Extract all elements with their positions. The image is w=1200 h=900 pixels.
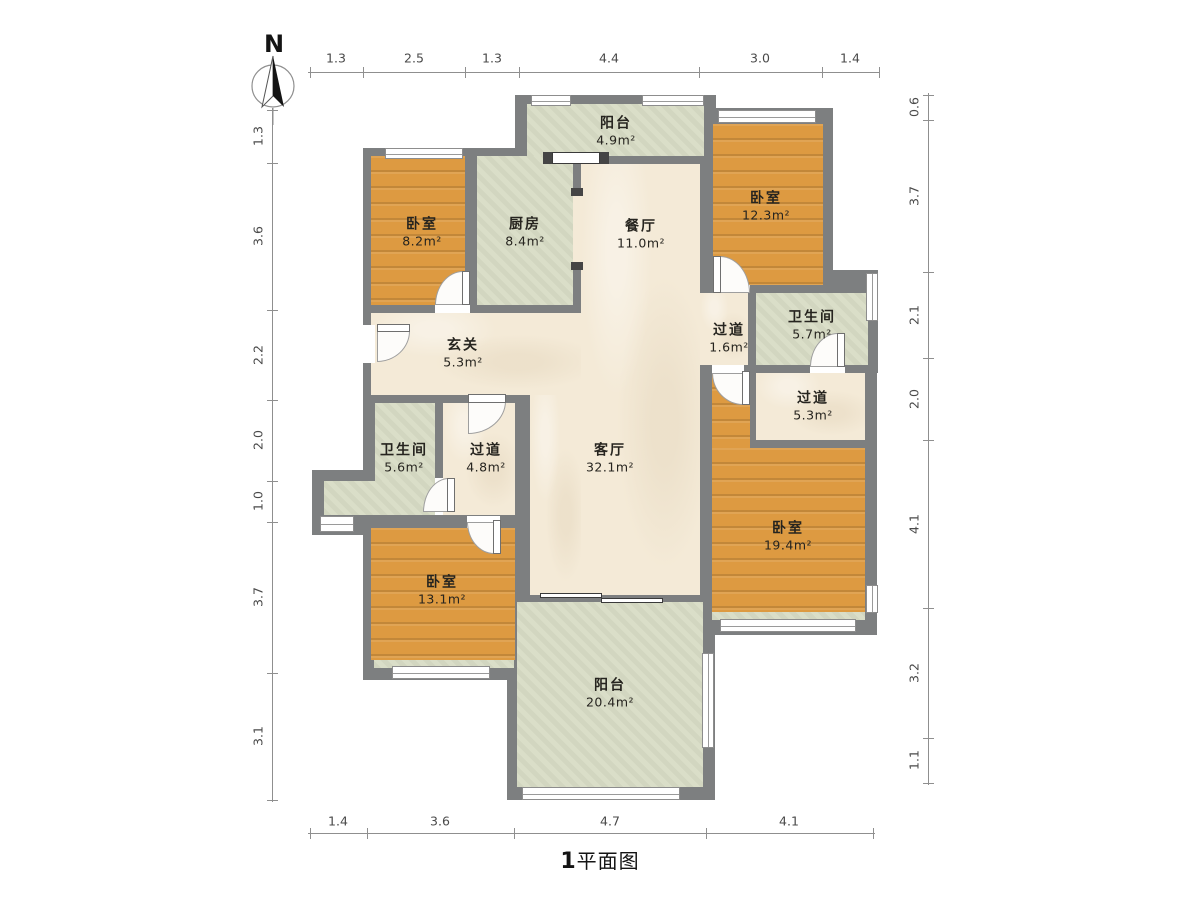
door-jamb [600, 152, 609, 164]
dim-tick [267, 800, 278, 801]
dim-tick [923, 120, 934, 121]
dimension-label: 0.6 [907, 97, 922, 117]
door-leaf [713, 256, 721, 293]
dimension-label: 1.1 [907, 750, 922, 770]
dimension-label: 2.0 [907, 389, 922, 409]
sliding-door [601, 598, 663, 603]
dimension-label: 3.7 [251, 587, 266, 607]
dimension-label: 4.1 [779, 814, 799, 829]
window [642, 95, 704, 106]
dim-tick [923, 272, 934, 273]
door-leaf [493, 520, 501, 554]
room-label: 客厅32.1m² [586, 440, 634, 475]
dimension-line-bottom [308, 833, 875, 834]
dim-tick [699, 67, 700, 78]
room-label: 过道4.8m² [466, 440, 506, 475]
dim-tick [873, 828, 874, 839]
dimension-label: 3.7 [907, 186, 922, 206]
dim-tick [923, 783, 934, 784]
window [522, 787, 680, 800]
dimension-label: 1.3 [482, 51, 502, 66]
window [720, 619, 856, 632]
dim-tick [514, 828, 515, 839]
dimension-label: 2.5 [404, 51, 424, 66]
dim-tick [519, 67, 520, 78]
dim-tick [267, 481, 278, 482]
dim-tick [367, 828, 368, 839]
dimension-label: 4.7 [600, 814, 620, 829]
door-opening [712, 365, 744, 373]
dimension-line-top [308, 72, 880, 73]
dim-tick [267, 163, 278, 164]
room-label: 卫生间5.6m² [380, 440, 428, 475]
sliding-door [552, 152, 600, 164]
door-jamb [571, 262, 583, 270]
dim-tick [267, 310, 278, 311]
dimension-label: 1.3 [251, 126, 266, 146]
door-jamb [571, 188, 583, 196]
window [866, 585, 878, 613]
door-leaf [377, 324, 410, 332]
dim-tick [267, 522, 278, 523]
dimension-label: 2.1 [907, 305, 922, 325]
dim-tick [923, 608, 934, 609]
dimension-line-left [272, 108, 273, 802]
room-label: 卧室12.3m² [742, 188, 790, 223]
dimension-label: 1.0 [251, 491, 266, 511]
door-leaf [742, 371, 750, 405]
dimension-label: 3.2 [907, 663, 922, 683]
window [718, 110, 816, 123]
dim-tick [923, 95, 934, 96]
room-label: 过道1.6m² [709, 320, 749, 355]
door-leaf [837, 333, 845, 367]
dimension-label: 3.6 [430, 814, 450, 829]
window [320, 516, 354, 532]
window [385, 148, 463, 159]
dim-tick [267, 400, 278, 401]
dimension-label: 1.4 [840, 51, 860, 66]
dim-tick [310, 828, 311, 839]
north-label: N [264, 30, 284, 58]
dim-tick [363, 67, 364, 78]
door-opening [363, 325, 375, 363]
door-opening [573, 196, 581, 262]
door-leaf [468, 394, 506, 403]
dimension-label: 3.0 [750, 51, 770, 66]
room-label: 过道5.3m² [793, 388, 833, 423]
plan-title-number: 1 [560, 849, 576, 874]
room-label: 阳台4.9m² [596, 113, 636, 148]
room-label: 阳台20.4m² [586, 675, 634, 710]
dim-tick [465, 67, 466, 78]
north-arrow-icon: N [240, 28, 310, 128]
room-label: 卧室19.4m² [764, 518, 812, 553]
door-leaf [447, 478, 455, 512]
room-label: 卧室8.2m² [402, 214, 442, 249]
dim-tick [706, 828, 707, 839]
dim-tick [923, 738, 934, 739]
window [531, 95, 571, 106]
dim-tick [267, 673, 278, 674]
dim-tick [923, 358, 934, 359]
room-label: 厨房8.4m² [505, 214, 545, 249]
window [866, 273, 878, 321]
door-jamb [543, 152, 552, 164]
dimension-label: 4.4 [599, 51, 619, 66]
dimension-label: 2.0 [251, 430, 266, 450]
room-label: 餐厅11.0m² [617, 216, 665, 251]
plan-title: 1平面图 [0, 845, 1200, 874]
sliding-door [540, 593, 602, 598]
dimension-label: 4.1 [907, 514, 922, 534]
dimension-label: 3.1 [251, 726, 266, 746]
window [392, 666, 490, 679]
room-label: 卫生间5.7m² [788, 307, 836, 342]
dimension-label: 1.4 [328, 814, 348, 829]
floor-plan: 阳台4.9m² 卧室8.2m² 厨房8.4m² 餐厅11.0m² 卧室12.3m… [0, 0, 1200, 900]
room-living-left [530, 395, 581, 595]
room-bathroom-left-lower [324, 481, 435, 515]
room-label: 玄关5.3m² [443, 335, 483, 370]
dim-tick [923, 440, 934, 441]
plan-title-text: 平面图 [577, 849, 640, 873]
dim-tick [879, 67, 880, 78]
dimension-label: 1.3 [326, 51, 346, 66]
dim-tick [267, 110, 278, 111]
room-label: 卧室13.1m² [418, 572, 466, 607]
dimension-label: 3.6 [251, 226, 266, 246]
window [702, 653, 714, 748]
dim-tick [822, 67, 823, 78]
door-leaf [462, 271, 470, 305]
dimension-line-right [928, 93, 929, 785]
door-opening [435, 305, 470, 313]
dimension-label: 2.2 [251, 345, 266, 365]
dim-tick [310, 67, 311, 78]
